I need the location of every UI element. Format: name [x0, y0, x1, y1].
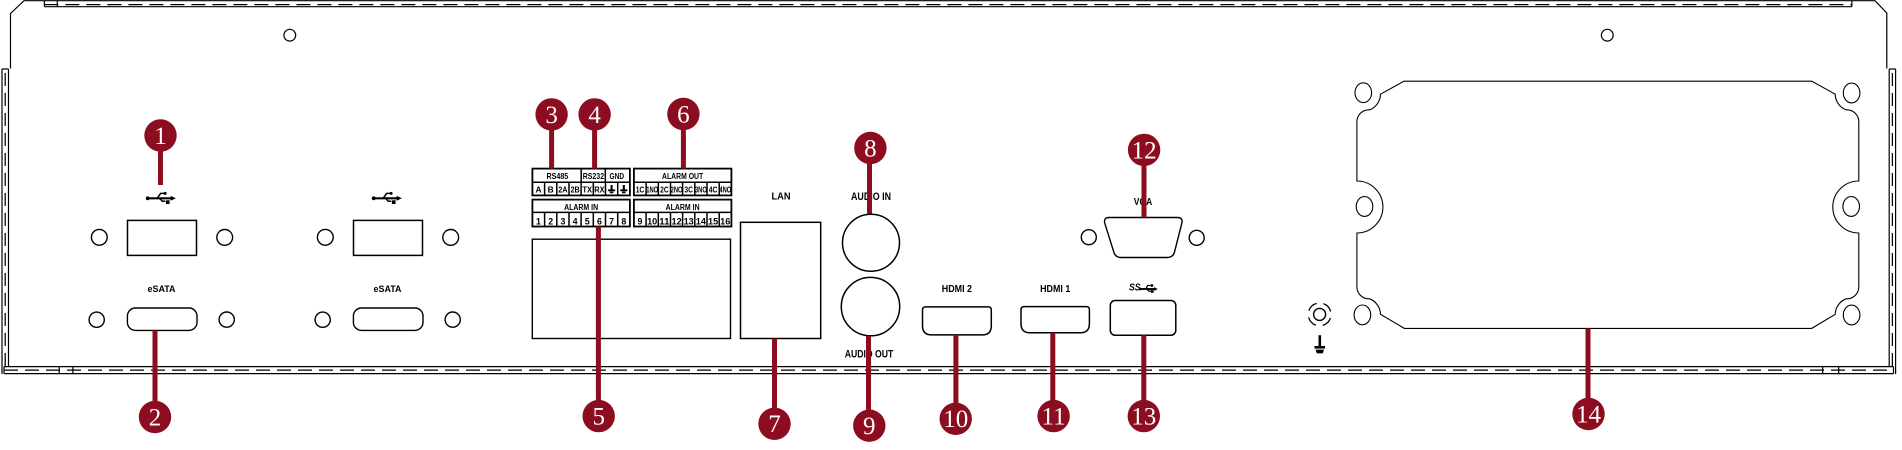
svg-text:1: 1 — [154, 123, 167, 150]
svg-text:3C: 3C — [684, 185, 693, 194]
svg-text:8: 8 — [864, 135, 877, 162]
svg-text:4: 4 — [573, 217, 578, 227]
svg-text:6: 6 — [677, 101, 690, 128]
svg-text:8: 8 — [621, 217, 626, 227]
svg-text:1C: 1C — [636, 185, 645, 194]
svg-text:LAN: LAN — [772, 190, 791, 202]
svg-text:3: 3 — [560, 217, 565, 227]
svg-text:RS232: RS232 — [583, 171, 605, 181]
svg-text:2C: 2C — [660, 185, 669, 194]
svg-text:SS: SS — [1129, 282, 1141, 293]
svg-text:RS485: RS485 — [547, 171, 569, 181]
svg-text:3NO: 3NO — [695, 185, 707, 194]
svg-text:10: 10 — [943, 406, 968, 433]
svg-text:10: 10 — [647, 217, 657, 227]
svg-text:2NO: 2NO — [671, 185, 683, 194]
svg-text:HDMI 2: HDMI 2 — [942, 284, 973, 295]
svg-text:5: 5 — [585, 217, 590, 227]
svg-text:5: 5 — [592, 404, 605, 431]
svg-text:12: 12 — [672, 217, 682, 227]
svg-text:RX: RX — [594, 185, 605, 195]
svg-text:TX: TX — [582, 185, 592, 195]
svg-text:11: 11 — [659, 217, 669, 227]
svg-text:4: 4 — [588, 102, 601, 129]
svg-text:14: 14 — [696, 217, 706, 227]
svg-text:13: 13 — [684, 217, 694, 227]
svg-text:9: 9 — [863, 413, 876, 440]
svg-text:HDMI 1: HDMI 1 — [1040, 284, 1071, 295]
svg-text:7: 7 — [609, 217, 614, 227]
svg-text:16: 16 — [720, 217, 730, 227]
svg-text:9: 9 — [638, 217, 643, 227]
svg-text:6: 6 — [597, 217, 602, 227]
svg-text:11: 11 — [1042, 404, 1066, 431]
svg-text:2: 2 — [548, 217, 553, 227]
svg-text:4NO: 4NO — [719, 185, 731, 194]
svg-text:ALARM OUT: ALARM OUT — [662, 171, 704, 181]
svg-text:GND: GND — [610, 171, 625, 181]
svg-text:ALARM IN: ALARM IN — [564, 202, 598, 212]
svg-text:15: 15 — [708, 217, 718, 227]
svg-text:4C: 4C — [709, 185, 718, 194]
svg-text:2: 2 — [149, 404, 162, 431]
svg-text:ALARM IN: ALARM IN — [666, 202, 700, 212]
svg-text:7: 7 — [768, 411, 781, 438]
svg-text:1: 1 — [536, 217, 541, 227]
svg-text:12: 12 — [1132, 137, 1157, 164]
svg-text:1NO: 1NO — [646, 185, 658, 194]
svg-text:2B: 2B — [570, 185, 579, 195]
svg-text:3: 3 — [545, 102, 558, 129]
svg-text:2A: 2A — [558, 185, 567, 195]
svg-text:A: A — [535, 185, 541, 195]
svg-text:13: 13 — [1131, 404, 1156, 431]
svg-text:14: 14 — [1576, 401, 1602, 428]
svg-text:B: B — [548, 185, 554, 195]
